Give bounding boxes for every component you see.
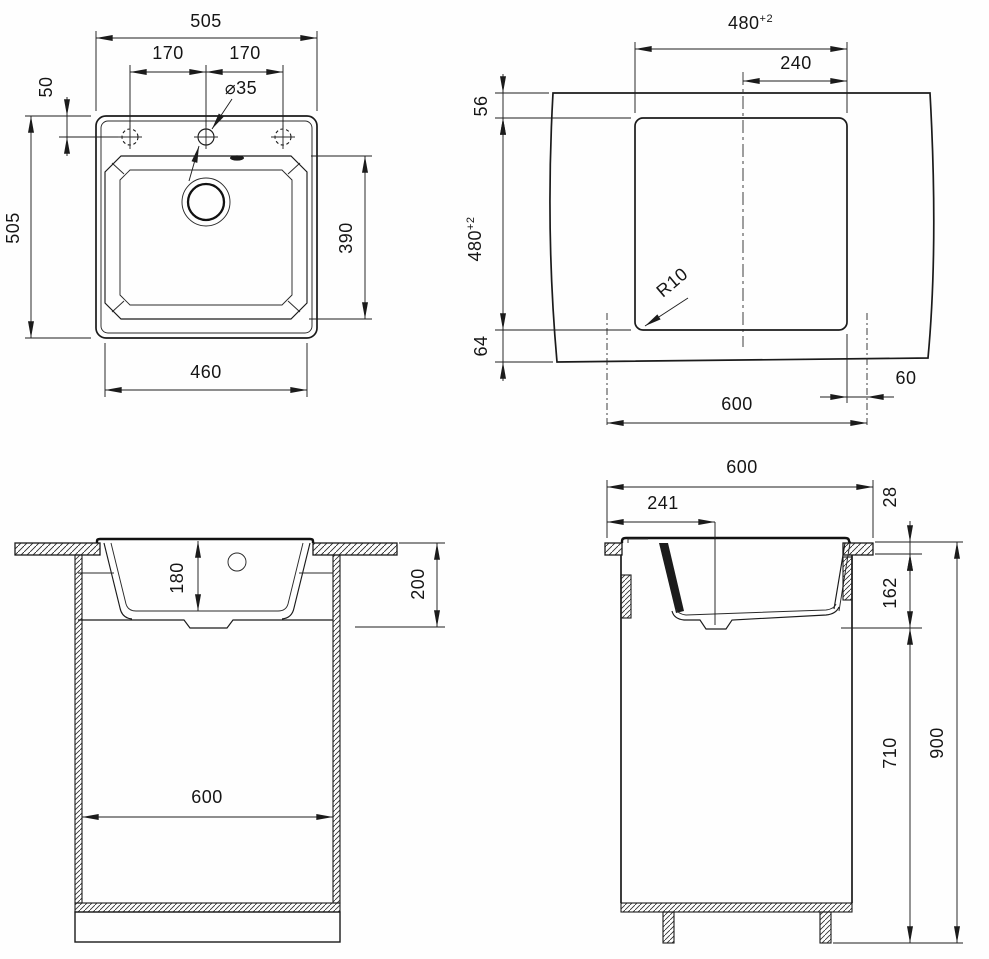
cabinet-leg-front	[663, 912, 674, 943]
drawing-page: 505 170 170 ⌀35 50 505	[0, 0, 989, 959]
dim-bowl-width-460: 460	[105, 343, 307, 397]
countertop-section-back	[843, 543, 873, 555]
sink-rim-section-side	[622, 538, 850, 543]
dim-label-r10: R10	[652, 264, 691, 302]
dim-overall-depth-left: 505	[3, 116, 91, 338]
top-view: 505 170 170 ⌀35 50 505	[3, 11, 372, 397]
bowl-front-wall	[659, 543, 684, 613]
dim-label-600-side: 600	[726, 457, 758, 477]
dim-label-460: 460	[190, 362, 222, 382]
bowl-rim-inner	[120, 170, 292, 305]
bowl-wall-left-inner	[111, 543, 136, 611]
dim-label-240: 240	[780, 53, 812, 73]
cabinet-wall-right	[333, 555, 340, 903]
front-rail-section	[621, 575, 631, 618]
overflow-slot	[230, 155, 244, 160]
sink-outline	[96, 116, 317, 338]
dim-rear-margin-64: 64	[471, 330, 553, 381]
dim-cabinet-width-600: 600	[607, 394, 867, 423]
dim-label-900: 900	[927, 727, 947, 759]
front-section-view: 180 200 600	[15, 539, 445, 942]
dim-tolerance: +2	[760, 13, 774, 25]
bowl-section	[78, 543, 333, 628]
overflow-hole-section	[228, 553, 246, 571]
bowl-section-side	[659, 543, 850, 629]
dim-label-180: 180	[167, 562, 187, 594]
dim-label-170-right: 170	[229, 43, 261, 63]
dim-label-50: 50	[36, 76, 56, 97]
dim-label-710: 710	[880, 737, 900, 769]
dim-label-170-left: 170	[152, 43, 184, 63]
dim-label-28: 28	[880, 486, 900, 507]
drain-inner	[188, 184, 224, 220]
dim-label-64: 64	[471, 335, 491, 356]
tap-holes	[118, 125, 295, 149]
dim-tap-hole-diameter: ⌀35	[189, 78, 257, 181]
dim-label-241: 241	[647, 493, 679, 513]
bowl-corner-chamfer	[288, 301, 300, 312]
drain-outer	[182, 178, 230, 226]
cutout-view: R10 480+2 240 56 480+2	[465, 13, 934, 428]
dim-value: 480	[465, 230, 485, 262]
dim-value: 480	[728, 13, 760, 33]
dim-label-480-top: 480+2	[728, 13, 773, 33]
drain	[182, 178, 230, 226]
rim-front-step	[628, 539, 648, 543]
back-rail-section	[843, 557, 852, 600]
dim-label-200: 200	[408, 568, 428, 600]
bowl-wall-right-inner	[278, 543, 303, 611]
bowl-corner-chamfer	[112, 163, 124, 174]
cabinet-plinth	[75, 912, 340, 942]
dim-cabinet-body-height-710: 710	[880, 628, 910, 943]
dim-corner-radius: R10	[645, 264, 692, 326]
dim-cutout-depth-left: 480+2	[465, 118, 631, 330]
dim-label-dia35: ⌀35	[225, 78, 257, 98]
sink-inner-edge	[101, 121, 312, 333]
side-section-view: 600 241 28 162 710 900	[605, 457, 963, 943]
dim-countertop-thickness-28: 28	[875, 486, 963, 575]
cabinet-leg-back	[820, 912, 831, 943]
dim-label-600: 600	[721, 394, 753, 414]
bowl-rim-outer	[105, 156, 307, 319]
dim-label-505-left: 505	[3, 212, 23, 244]
dim-overall-width-top: 505	[96, 11, 317, 111]
dim-label-390: 390	[336, 222, 356, 254]
countertop-section-right	[313, 543, 397, 555]
dim-label-56: 56	[471, 95, 491, 116]
dim-bowl-depth-390: 390	[309, 156, 372, 319]
dim-tolerance: +2	[465, 216, 477, 230]
dim-label-600-front: 600	[191, 787, 223, 807]
bowl-floor-outer-with-drain-recess	[78, 620, 333, 628]
countertop-sheet	[550, 93, 934, 362]
dim-label-60: 60	[895, 368, 916, 388]
countertop-section-left	[15, 543, 100, 555]
cabinet-bottom-panel	[75, 903, 340, 912]
cabinet-wall-left	[75, 555, 82, 903]
dim-label-480-left: 480+2	[465, 216, 485, 261]
dim-bowl-depth-180: 180	[167, 541, 198, 611]
dim-sink-below-top-162: 162	[841, 554, 922, 628]
technical-drawing: 505 170 170 ⌀35 50 505	[0, 0, 989, 959]
bowl-corner-chamfer	[288, 163, 300, 174]
dim-center-to-edge-240: 240	[743, 53, 847, 81]
dim-label-505-top: 505	[190, 11, 222, 31]
bowl-corner-chamfer	[112, 301, 124, 312]
dim-label-162: 162	[880, 577, 900, 609]
countertop-section-front	[605, 543, 622, 555]
dim-cutout-width-top: 480+2	[635, 13, 847, 113]
bowl-floor-inner-side	[676, 604, 836, 615]
cabinet-bottom-panel-side	[621, 903, 852, 912]
dim-inner-width-600: 600	[82, 787, 333, 817]
dim-edge-offset-60: 60	[820, 334, 917, 403]
sink-rim-section	[97, 539, 313, 543]
